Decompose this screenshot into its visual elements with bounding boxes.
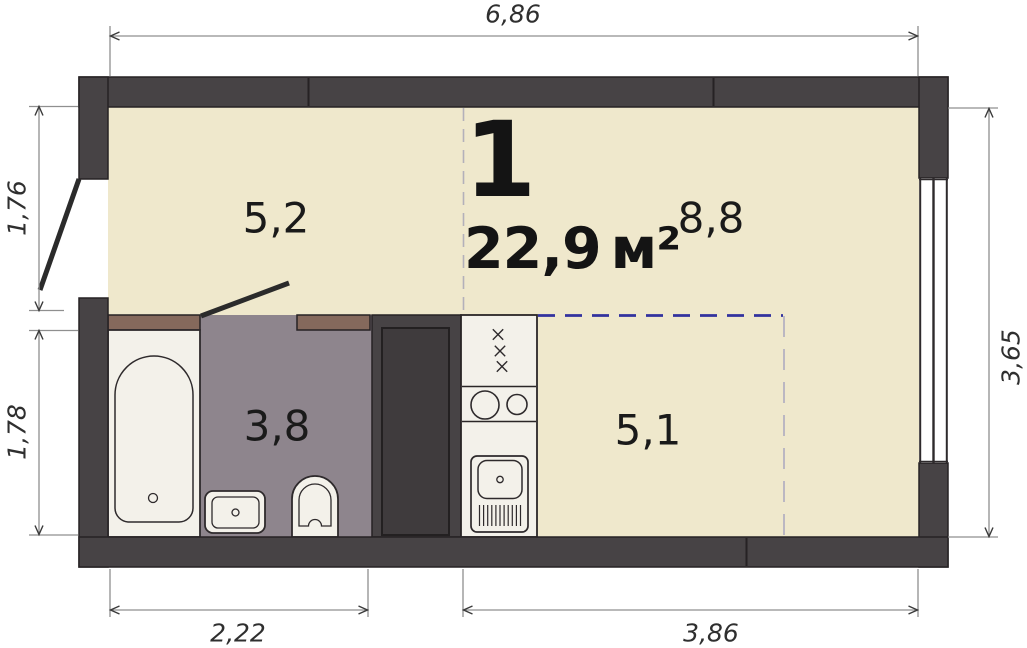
wall-right-upper [919, 77, 948, 178]
window [919, 178, 948, 463]
dim-label-top: 6,86 [485, 0, 541, 29]
wall-bottom [79, 537, 948, 567]
room-area-living-right: 8,8 [678, 194, 745, 243]
bathroom-lintel-right [297, 315, 370, 330]
dim-label-bottom-left: 2,22 [210, 619, 266, 648]
dim-label-left-upper: 1,76 [3, 180, 32, 236]
toilet [292, 476, 338, 537]
unit-area-unit: м² [611, 216, 681, 282]
floor-plan: 6,86 1,76 1,78 3,65 2,22 3,86 5,2 8,8 3,… [0, 0, 1027, 648]
unit-total-area: 22,9м² [464, 216, 680, 282]
room-area-bathroom: 3,8 [244, 402, 311, 451]
entry-door-leaf [40, 179, 79, 290]
bathroom-lintel-left [108, 315, 200, 330]
unit-area-value: 22,9 [464, 216, 601, 282]
wall-left-lower [79, 298, 108, 567]
bathroom-sink [205, 491, 265, 533]
unit-number: 1 [464, 108, 536, 212]
floor-plan-drawing [0, 0, 1027, 648]
wardrobe [372, 315, 461, 537]
dim-label-left-lower: 1,78 [3, 404, 32, 460]
room-area-living-left: 5,2 [243, 194, 310, 243]
room-area-kitchen: 5,1 [615, 406, 682, 455]
bathtub [115, 356, 193, 522]
wall-left-upper [79, 77, 108, 179]
kitchen-sink [471, 456, 528, 532]
dim-label-right: 3,65 [997, 329, 1026, 385]
dim-label-bottom-right: 3,86 [683, 619, 739, 648]
